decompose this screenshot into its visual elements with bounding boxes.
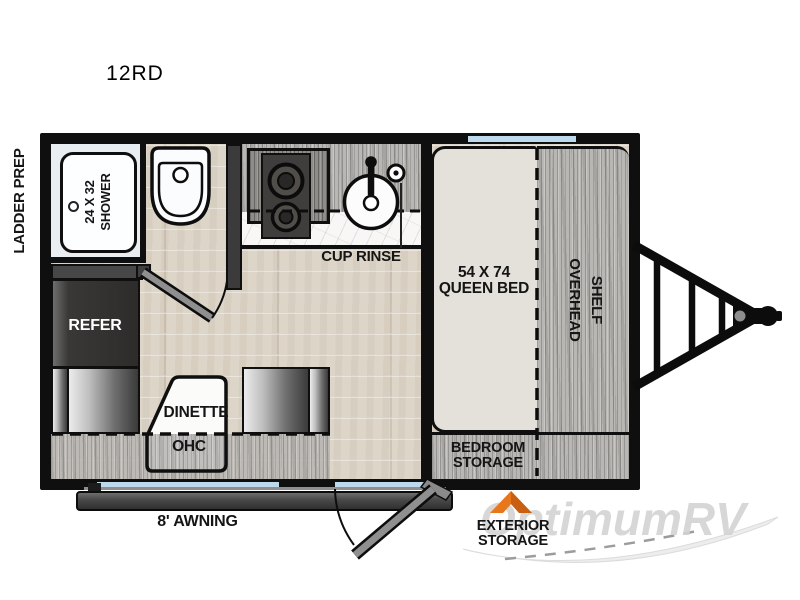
bed-label: 54 X 74 QUEEN BED xyxy=(433,265,535,297)
refer-label: REFER xyxy=(55,318,135,335)
shower-label: SHOWER xyxy=(99,164,113,240)
dinette-label: DINETTE xyxy=(150,405,242,421)
exterior-storage-line2: STORAGE xyxy=(468,534,558,549)
bed-size-text: 54 X 74 xyxy=(433,265,535,281)
bedroom-storage-label: BEDROOM STORAGE xyxy=(438,441,538,471)
ohc-label: OHC xyxy=(159,439,219,455)
exterior-storage-line1: EXTERIOR xyxy=(468,519,558,534)
exterior-storage-arrow-icon xyxy=(0,0,800,600)
overhead-shelf-label-word2: SHELF xyxy=(588,245,604,355)
bedroom-storage-line2: STORAGE xyxy=(438,456,538,471)
awning-label: 8' AWNING xyxy=(130,514,265,531)
cup-rinse-label: CUP RINSE xyxy=(313,249,409,265)
bedroom-storage-line1: BEDROOM xyxy=(438,441,538,456)
shower-size-label: 24 X 32 xyxy=(83,164,97,240)
overhead-shelf-label-word1: OVERHEAD xyxy=(566,245,582,355)
floorplan-page: 12RD LADDER PREP xyxy=(0,0,800,600)
exterior-storage-label: EXTERIOR STORAGE xyxy=(468,519,558,549)
bed-type-text: QUEEN BED xyxy=(433,281,535,297)
